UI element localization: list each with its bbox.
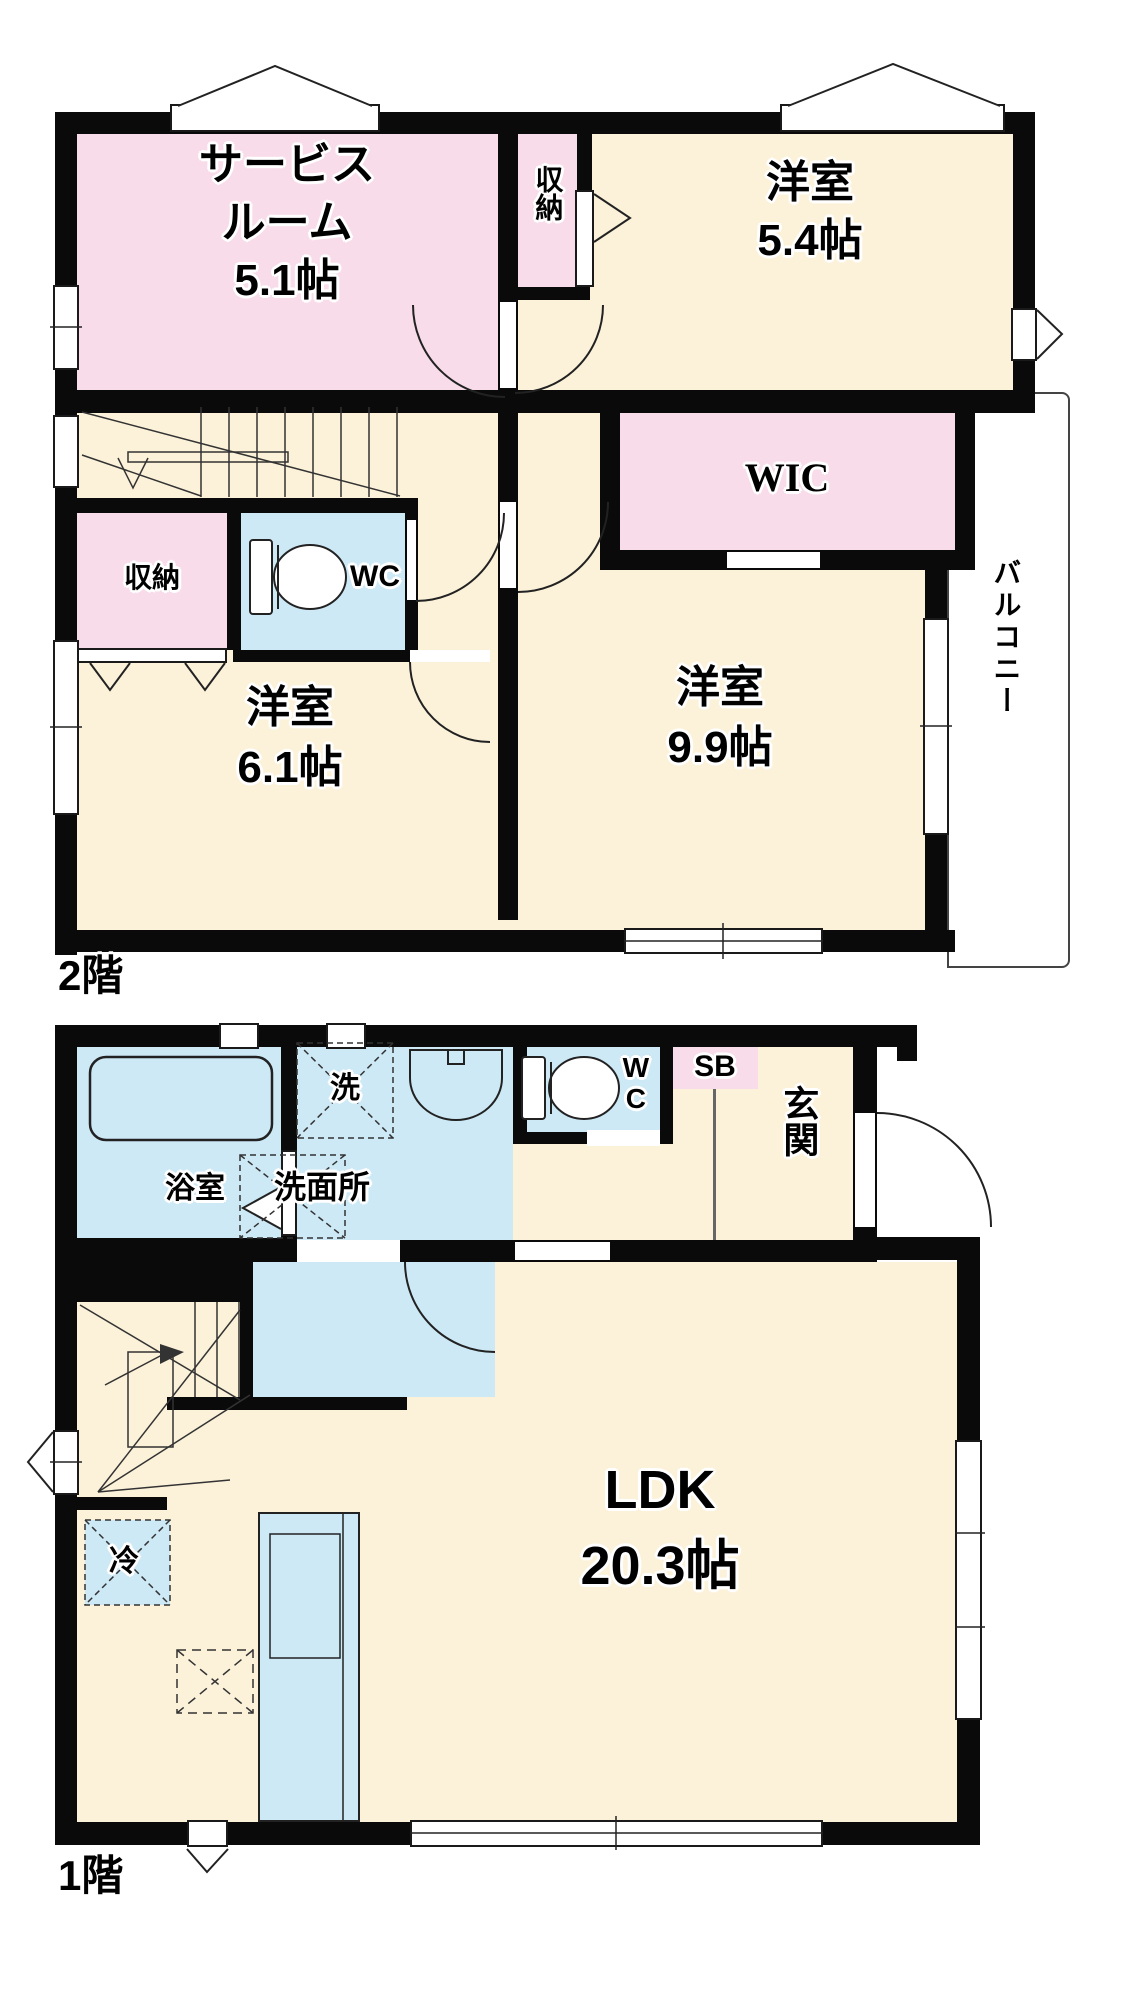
window — [53, 415, 79, 488]
room-label-wic: WIC — [745, 456, 829, 501]
window — [624, 928, 823, 954]
room-label-service-1: サービス — [199, 140, 375, 189]
room-label-fridge: 冷 — [109, 1545, 139, 1579]
entry-door-opening — [855, 1113, 875, 1227]
room-label-ldk: LDK — [605, 1460, 716, 1520]
door-opening — [587, 1130, 660, 1146]
window — [1011, 308, 1037, 361]
door-opening — [500, 302, 516, 388]
room-bath — [77, 1047, 281, 1238]
room-label-service-size: 5.1帖 — [234, 256, 339, 305]
closet-opening — [575, 190, 594, 287]
door-opening — [410, 650, 490, 662]
closet-opening — [77, 648, 227, 663]
room-label-washer: 洗 — [330, 1072, 360, 1106]
door-opening — [515, 1242, 610, 1260]
window — [170, 104, 380, 132]
window — [780, 104, 1005, 132]
room-label-closet-top: 収納 — [532, 165, 563, 221]
window — [53, 1430, 79, 1495]
room-label-ldk-size: 20.3帖 — [580, 1536, 739, 1596]
room-label-shoebox: SB — [694, 1050, 736, 1084]
room-label-service-2: ルーム — [222, 198, 353, 247]
room-label-closet2: 収納 — [124, 562, 180, 593]
entrance-step-line — [713, 1089, 716, 1240]
window-swing-icon — [28, 1432, 53, 1492]
window — [187, 1820, 228, 1847]
room-label-balcony: バルコニー — [990, 558, 1021, 718]
floor-plan: サービス ルーム 5.1帖 収納 洋室 5.4帖 WIC 収納 WC 洋室 6.… — [0, 0, 1121, 2000]
floor1-area-main — [77, 1262, 957, 1822]
room-label-western61-size: 6.1帖 — [237, 743, 342, 792]
bay-window-icon — [788, 64, 1000, 106]
room-label-western99-size: 9.9帖 — [667, 723, 772, 772]
kitchen-counter — [258, 1512, 360, 1822]
bay-window-icon — [178, 66, 372, 106]
door-opening — [727, 552, 820, 568]
room-label-wc2f: WC — [350, 560, 400, 594]
room-label-western54-size: 5.4帖 — [757, 216, 862, 265]
room-label-wc1f: WC — [620, 1052, 651, 1114]
room-label-bath: 浴室 — [165, 1172, 225, 1206]
window-swing-icon — [187, 1849, 228, 1872]
floor2-label: 2階 — [58, 952, 123, 999]
window — [53, 285, 79, 370]
floor1-label: 1階 — [58, 1852, 123, 1899]
window — [410, 1820, 823, 1847]
window — [219, 1023, 259, 1049]
room-label-western54: 洋室 — [766, 158, 854, 207]
window — [955, 1440, 982, 1720]
window-swing-icon — [1037, 310, 1062, 359]
window — [326, 1023, 366, 1049]
window — [53, 640, 79, 815]
door-opening — [407, 520, 416, 600]
room-label-washroom: 洗面所 — [274, 1170, 370, 1206]
room-washroom-lower — [253, 1262, 495, 1397]
room-label-western61: 洋室 — [246, 683, 334, 732]
room-label-western99: 洋室 — [676, 663, 764, 712]
window — [923, 618, 949, 835]
door-opening — [500, 502, 516, 588]
entry-door-arc — [877, 1113, 991, 1227]
room-label-entrance: 玄関 — [778, 1085, 818, 1157]
